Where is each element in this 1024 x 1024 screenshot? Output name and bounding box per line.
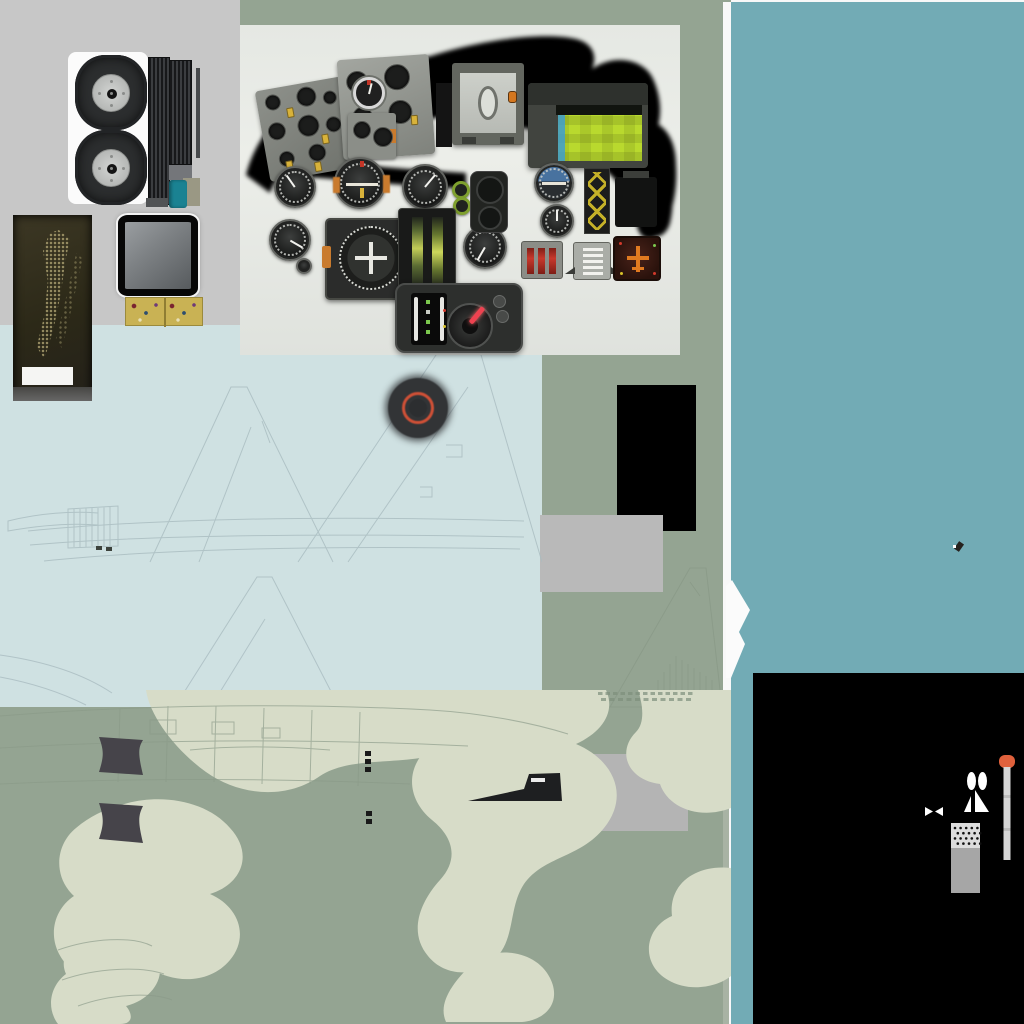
stencil-dash xyxy=(658,692,663,695)
stencil-dash xyxy=(636,692,641,695)
status-dot-yellow xyxy=(620,272,623,275)
perforation-dot xyxy=(971,827,974,830)
camo-blob xyxy=(412,690,617,972)
thin-strake xyxy=(196,68,200,158)
roundel-center xyxy=(409,399,427,417)
camo-blob xyxy=(626,690,731,813)
stepper-row xyxy=(583,260,603,263)
wheel-hub xyxy=(92,149,130,187)
red-bar xyxy=(527,248,534,274)
cockpit-photo-region xyxy=(240,25,680,355)
attitude-horizon-bar xyxy=(346,183,378,186)
ribbed-strake-1 xyxy=(148,57,170,205)
main-gear-tire-2 xyxy=(75,130,147,205)
pitot-segment xyxy=(1004,795,1011,798)
display-bar-right xyxy=(440,297,444,341)
perforation-dot xyxy=(957,832,960,835)
chevron-pattern xyxy=(588,172,606,230)
perforation-dot xyxy=(957,842,960,845)
stencil-dash xyxy=(601,698,606,701)
stencil-dash xyxy=(598,692,603,695)
perforation-dot xyxy=(959,837,962,840)
camouflage-sheet-art xyxy=(0,690,731,1024)
perforation-dot xyxy=(962,842,965,845)
perforation-dot xyxy=(968,842,971,845)
tail-fin-line xyxy=(8,512,98,531)
tail-fin-line xyxy=(199,421,270,562)
sprite-solid-shape xyxy=(99,737,143,775)
horizon-wings xyxy=(542,182,565,185)
perforation-dot xyxy=(971,837,974,840)
sprite-solid-shape xyxy=(99,803,143,843)
hsi-compass-card xyxy=(339,226,403,290)
beacon-lens-right xyxy=(978,772,987,790)
stepper-row xyxy=(583,272,603,275)
stencil-dash xyxy=(635,698,640,701)
stencil-dash xyxy=(643,692,648,695)
roundel xyxy=(388,378,448,438)
altimeter xyxy=(274,166,316,208)
bowtie-left xyxy=(925,807,933,816)
box-top-tab xyxy=(623,171,649,178)
attitude-indicator xyxy=(334,157,386,209)
perforation-dot xyxy=(959,827,962,830)
region-teal-lower xyxy=(731,673,753,1024)
stencil-dash xyxy=(651,692,656,695)
patch-white-label xyxy=(22,367,73,385)
stencil-dash xyxy=(627,698,632,701)
turn-indicator xyxy=(540,204,574,238)
status-dot-red xyxy=(619,242,622,245)
camo-blob xyxy=(649,867,731,987)
gold-circuit-plate xyxy=(125,297,203,326)
hub-bolts xyxy=(110,92,113,95)
ribbed-strake-2 xyxy=(169,60,192,165)
perforation-dot xyxy=(979,832,982,835)
fuselage-line-art xyxy=(0,780,410,785)
stencil-dash xyxy=(669,698,674,701)
stencil-dash xyxy=(652,698,657,701)
black-swatch-rect xyxy=(617,385,696,531)
black-avionics-box xyxy=(615,177,657,227)
stepper-row xyxy=(583,266,603,269)
stepper-instrument xyxy=(573,242,611,280)
red-dot-marker xyxy=(443,309,446,312)
pitot-orange-cap xyxy=(999,755,1015,768)
aux-button-1 xyxy=(493,295,506,308)
beacon-fin-small xyxy=(964,796,971,812)
perforation-dot xyxy=(965,827,968,830)
fin-sketch-line xyxy=(690,582,700,596)
chevron-tape-instrument xyxy=(584,168,610,234)
drum-dial-top xyxy=(476,176,504,204)
tail-fin-line xyxy=(176,577,338,705)
texture-atlas-sheet xyxy=(0,0,1024,1024)
status-dot-red2 xyxy=(653,272,656,275)
stencil-dash xyxy=(673,692,678,695)
stencil-dash xyxy=(606,692,611,695)
beacon-lens-left xyxy=(967,772,976,790)
display-dot xyxy=(426,320,430,324)
small-knob xyxy=(296,258,312,274)
drum-instrument xyxy=(470,171,508,233)
hsi-plane-symbol-h xyxy=(355,256,387,260)
wheel-hub xyxy=(92,74,130,112)
olive-texture-patch xyxy=(13,215,92,401)
stencil-dash xyxy=(618,698,623,701)
perforation-dot xyxy=(976,827,979,830)
sprite-solid-shape xyxy=(531,778,545,782)
stencil-dash xyxy=(621,692,626,695)
bowtie-right xyxy=(935,807,943,816)
sprite-solid-shape xyxy=(365,751,372,824)
framed-screen-sprite xyxy=(118,215,198,296)
stencil-dash xyxy=(628,692,633,695)
perforation-dot xyxy=(954,827,957,830)
perforation-dot xyxy=(968,832,971,835)
stencil-dash xyxy=(686,698,691,701)
display-bar-left xyxy=(414,297,418,341)
perforation-dot xyxy=(973,842,976,845)
display-dot xyxy=(426,300,430,304)
jet-silhouette-wings xyxy=(627,256,649,260)
stepper-row xyxy=(583,254,603,257)
perforation-dot xyxy=(976,837,979,840)
airspeed-indicator xyxy=(402,164,448,210)
perforation-dot xyxy=(965,837,968,840)
beacon-fin-large xyxy=(975,790,989,812)
hsi-orange-tab-left xyxy=(322,246,331,268)
plate-divider xyxy=(164,298,166,327)
hub-bolts xyxy=(110,167,113,170)
attitude-orange-left xyxy=(333,177,340,193)
perforation-dot xyxy=(973,832,976,835)
teal-paint-swatch xyxy=(169,180,187,208)
display-dot xyxy=(426,330,430,334)
stepper-wing-left xyxy=(565,267,575,274)
wedge-shape xyxy=(726,580,750,678)
engine-tape-2 xyxy=(432,217,443,287)
drum-dial-bottom xyxy=(478,206,502,230)
stencil-dash xyxy=(681,692,686,695)
region-teal-column xyxy=(731,2,1024,673)
red-bar xyxy=(538,248,545,274)
perforation-dot xyxy=(962,832,965,835)
stencil-dash xyxy=(613,692,618,695)
stencil-dash xyxy=(610,698,615,701)
stencil-dash xyxy=(666,692,671,695)
red-bar xyxy=(549,248,556,274)
stepper-row xyxy=(583,248,603,251)
attitude-pointer xyxy=(360,188,364,198)
attitude-red-index xyxy=(360,161,364,167)
perforation-dot xyxy=(979,842,982,845)
stencil-dash xyxy=(644,698,649,701)
aux-button-2 xyxy=(496,310,509,323)
counter-display xyxy=(411,293,447,345)
weapons-status-panel xyxy=(613,236,661,281)
gauge-needle xyxy=(556,210,558,221)
red-bar-instrument xyxy=(521,241,563,279)
pitot-segment xyxy=(1004,828,1011,831)
display-dot xyxy=(426,310,430,314)
artificial-horizon xyxy=(534,163,574,203)
tail-fin-line xyxy=(298,331,542,562)
attitude-orange-right xyxy=(383,175,390,193)
stencil-dash xyxy=(678,698,683,701)
stencil-dash xyxy=(688,692,693,695)
dark-block xyxy=(146,198,168,207)
antenna-sprites xyxy=(920,750,1024,900)
rotary-knob xyxy=(447,303,493,349)
perforation-dot xyxy=(954,837,957,840)
bottom-knob-panel xyxy=(395,283,523,353)
white-wedge-mark xyxy=(726,580,752,678)
teal-speck-white xyxy=(953,545,956,548)
stencil-dash xyxy=(661,698,666,701)
main-gear-tire-1 xyxy=(75,55,147,130)
pitot-pole xyxy=(1004,767,1011,860)
status-dot-green xyxy=(653,244,656,247)
clock xyxy=(269,219,311,261)
engine-tape-1 xyxy=(412,217,423,287)
mast-base xyxy=(951,848,980,893)
fin-sketch-line xyxy=(610,568,722,707)
ghost-figure-texture xyxy=(13,221,92,371)
jet-silhouette-tail xyxy=(632,267,644,270)
patch-gray-footer xyxy=(13,387,92,401)
tail-fin-line xyxy=(28,518,524,561)
knob-tick-dot xyxy=(443,325,446,328)
